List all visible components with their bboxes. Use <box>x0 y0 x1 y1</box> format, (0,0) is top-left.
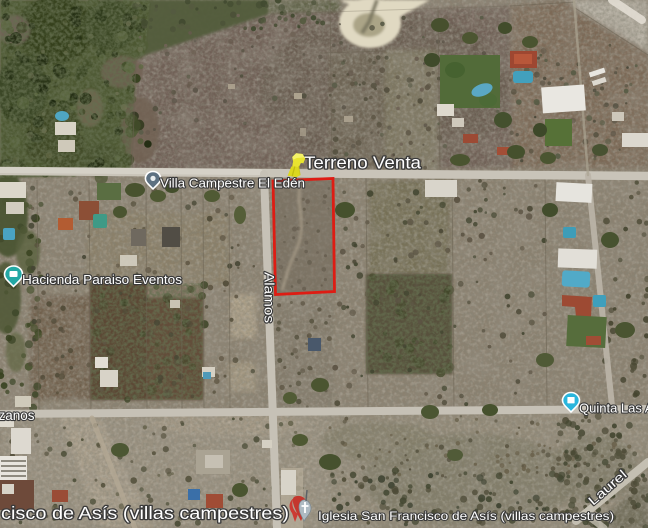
svg-text:Quinta Las Ag: Quinta Las Ag <box>579 401 648 416</box>
svg-text:cisco de Asís (villas campestr: cisco de Asís (villas campestres) <box>1 503 289 523</box>
svg-text:Iglesia San Francisco de Asís: Iglesia San Francisco de Asís (villas ca… <box>318 509 614 523</box>
svg-text:Alamos: Alamos <box>262 272 277 323</box>
svg-text:nzanos: nzanos <box>0 408 35 423</box>
svg-text:Terreno Venta: Terreno Venta <box>304 153 421 173</box>
svg-text:Villa Campestre El Edén: Villa Campestre El Edén <box>160 176 305 191</box>
svg-text:Hacienda Paraiso Eventos: Hacienda Paraiso Eventos <box>22 272 183 287</box>
